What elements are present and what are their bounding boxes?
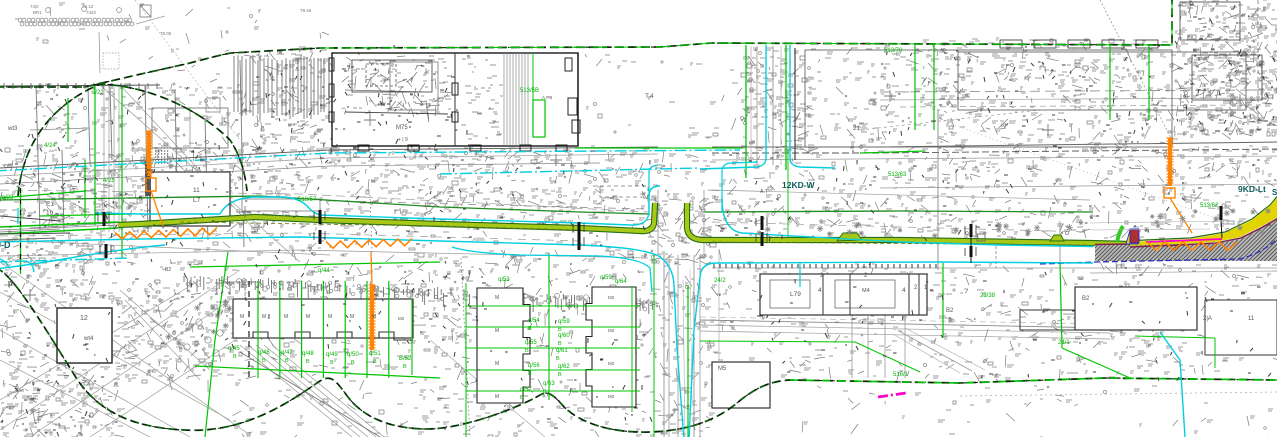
svg-text:24/2: 24/2 bbox=[714, 278, 726, 284]
svg-text:B: B bbox=[543, 389, 547, 395]
svg-text:0-D: 0-D bbox=[0, 240, 11, 250]
svg-text:B2: B2 bbox=[946, 308, 954, 314]
svg-text:q/62: q/62 bbox=[558, 364, 570, 370]
svg-text:M: M bbox=[306, 314, 310, 320]
svg-text:B: B bbox=[373, 359, 377, 365]
svg-text:B: B bbox=[558, 327, 562, 333]
svg-text:E1: E1 bbox=[46, 201, 54, 208]
svg-text:+ | 9: + | 9 bbox=[398, 137, 408, 143]
svg-text:74|2: 74|2 bbox=[30, 4, 39, 9]
svg-text:78.12: 78.12 bbox=[82, 4, 94, 9]
svg-text:513/62: 513/62 bbox=[1200, 203, 1219, 209]
svg-text:q/59: q/59 bbox=[600, 275, 612, 281]
svg-text:q/61: q/61 bbox=[556, 348, 568, 354]
svg-text:q/46: q/46 bbox=[258, 350, 270, 356]
svg-text:78.05: 78.05 bbox=[160, 31, 172, 36]
svg-text:M: M bbox=[328, 314, 332, 320]
svg-text:M4: M4 bbox=[862, 288, 870, 294]
svg-text:wt3: wt3 bbox=[7, 126, 18, 132]
svg-text:B: B bbox=[528, 371, 532, 377]
svg-text:9KD-Lt: 9KD-Lt bbox=[1238, 184, 1266, 194]
svg-text:wt4: wt4 bbox=[83, 336, 94, 342]
svg-text:q/44: q/44 bbox=[318, 268, 330, 274]
svg-text:q/56: q/56 bbox=[528, 363, 540, 369]
svg-text:q/54: q/54 bbox=[528, 318, 540, 324]
svg-text:S: S bbox=[1272, 188, 1277, 197]
svg-text:m/23: m/23 bbox=[0, 195, 14, 201]
svg-text:q/53: q/53 bbox=[498, 277, 510, 283]
svg-text:513/57: 513/57 bbox=[298, 197, 317, 203]
svg-text:B2: B2 bbox=[165, 267, 171, 273]
svg-text:q/45: q/45 bbox=[228, 346, 240, 352]
svg-text:B/52: B/52 bbox=[399, 356, 412, 362]
svg-text:q/55: q/55 bbox=[525, 340, 537, 346]
svg-text:M: M bbox=[495, 295, 499, 301]
svg-text:2|A: 2|A bbox=[1203, 316, 1212, 322]
svg-text:M: M bbox=[495, 394, 499, 400]
svg-text:M5: M5 bbox=[718, 366, 727, 372]
svg-text:q/50: q/50 bbox=[347, 352, 359, 358]
svg-text:3/22: 3/22 bbox=[92, 90, 104, 96]
svg-text:q/63: q/63 bbox=[543, 381, 555, 387]
svg-text:B: B bbox=[403, 364, 407, 370]
svg-text:B: B bbox=[285, 358, 289, 364]
svg-text:L79: L79 bbox=[790, 291, 801, 298]
svg-text:A.PB: A.PB bbox=[542, 95, 552, 100]
svg-text:B: B bbox=[558, 341, 562, 347]
svg-text:B: B bbox=[528, 326, 532, 332]
svg-text:M2: M2 bbox=[608, 394, 615, 399]
svg-text:M: M bbox=[495, 328, 499, 334]
svg-text:B: B bbox=[233, 354, 237, 360]
svg-text:B2: B2 bbox=[1082, 296, 1090, 302]
svg-text:B: B bbox=[330, 360, 334, 366]
svg-text:19: 19 bbox=[46, 210, 54, 217]
svg-text:M2: M2 bbox=[608, 328, 615, 333]
svg-text:q/49: q/49 bbox=[326, 352, 338, 358]
svg-text:q/64: q/64 bbox=[615, 279, 627, 285]
svg-text:B: B bbox=[351, 360, 355, 366]
svg-text:7422: 7422 bbox=[86, 10, 97, 15]
svg-text:11: 11 bbox=[193, 187, 200, 194]
svg-text:M75: M75 bbox=[396, 125, 408, 131]
svg-text:B: B bbox=[556, 356, 560, 362]
svg-text:M2: M2 bbox=[398, 316, 405, 321]
svg-text:q/59: q/59 bbox=[558, 319, 570, 325]
svg-text:M: M bbox=[372, 314, 376, 320]
svg-text:B: B bbox=[262, 358, 266, 364]
svg-text:4/23: 4/23 bbox=[103, 178, 115, 184]
svg-text:12: 12 bbox=[80, 315, 88, 322]
svg-text:A.T: A.T bbox=[760, 189, 768, 195]
svg-text:q/47: q/47 bbox=[281, 350, 293, 356]
svg-text:M: M bbox=[262, 314, 266, 320]
svg-text:513/63: 513/63 bbox=[888, 172, 907, 178]
svg-text:4/24: 4/24 bbox=[44, 143, 56, 149]
svg-text:24/1: 24/1 bbox=[1058, 340, 1070, 346]
svg-text:M: M bbox=[240, 314, 244, 320]
svg-text:q/48: q/48 bbox=[302, 351, 314, 357]
svg-text:4: 4 bbox=[902, 287, 906, 294]
svg-text:516/1: 516/1 bbox=[893, 372, 909, 378]
svg-text:q/57: q/57 bbox=[520, 387, 532, 393]
svg-text:23/38: 23/38 bbox=[980, 293, 996, 299]
svg-text:q/51: q/51 bbox=[369, 351, 381, 357]
svg-text:11: 11 bbox=[1248, 316, 1255, 322]
svg-text:T.4: T.4 bbox=[645, 93, 654, 100]
svg-text:M2: M2 bbox=[608, 361, 615, 366]
svg-text:21: 21 bbox=[853, 125, 861, 132]
svg-text:78.46: 78.46 bbox=[300, 8, 312, 13]
svg-text:BR1: BR1 bbox=[33, 10, 42, 15]
svg-text:B: B bbox=[520, 395, 524, 401]
svg-text:M2: M2 bbox=[608, 295, 615, 300]
svg-text:M: M bbox=[284, 314, 288, 320]
svg-text:B: B bbox=[306, 359, 310, 365]
svg-text:B: B bbox=[558, 372, 562, 378]
svg-text:L7: L7 bbox=[193, 197, 201, 204]
svg-text:4: 4 bbox=[818, 287, 822, 294]
svg-text:M: M bbox=[495, 361, 499, 367]
svg-text:513/5B: 513/5B bbox=[520, 88, 539, 94]
svg-text:12KD-W: 12KD-W bbox=[782, 180, 816, 190]
svg-text:M: M bbox=[350, 314, 354, 320]
svg-text:B: B bbox=[525, 348, 529, 354]
svg-text:q/60: q/60 bbox=[558, 333, 570, 339]
